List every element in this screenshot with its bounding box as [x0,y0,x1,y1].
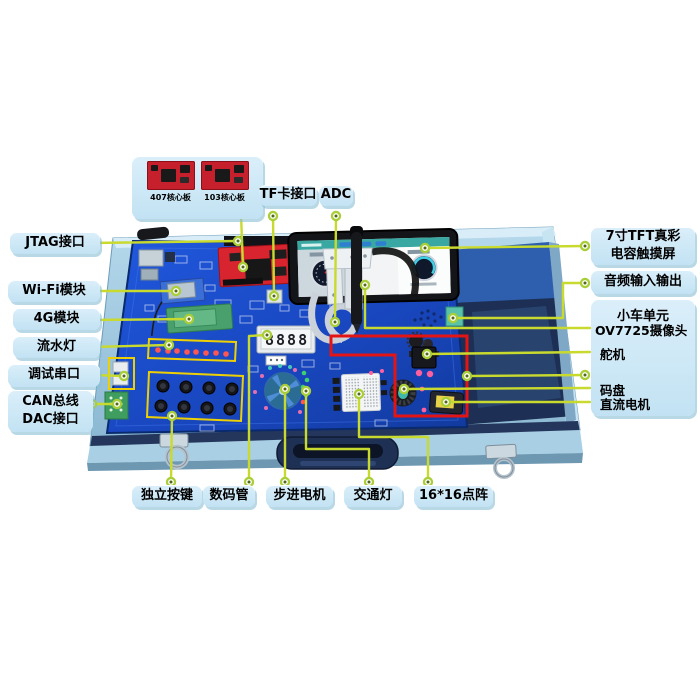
car-unit-panel: 小车单元 OV7725摄像头 舵机 码盘 直流电机 [591,299,695,416]
label-can-dac: CAN总线 DAC接口 [8,390,93,432]
core-board-103-caption: 103核心板 [204,192,245,203]
case-handle [277,437,398,469]
core-board-103-image [201,161,249,190]
core-board-103-thumb: 103核心板 [201,161,249,203]
label-debug-uart: 调试串口 [8,364,100,387]
core-board [218,244,295,287]
label-audio: 音频输入输出 [591,270,695,294]
label-wifi: Wi-Fi模块 [8,280,100,302]
product-diagram: 8888 [0,0,700,700]
label-tft: 7寸TFT真彩 电容触摸屏 [591,227,695,265]
label-dc-motor: 直流电机 [600,394,650,413]
label-tf-card: TF卡接口 [259,185,317,206]
pen [350,226,363,334]
storage-bin [450,242,576,425]
label-led-flow: 流水灯 [13,336,100,358]
core-board-407-thumb: 407核心板 [147,161,195,203]
label-camera: OV7725摄像头 [595,320,687,339]
label-stepper: 步进电机 [266,485,333,507]
core-board-407-image [147,161,195,190]
label-servo: 舵机 [600,344,625,363]
label-adc: ADC [319,185,353,206]
label-4g: 4G模块 [13,308,100,330]
core-board-panel: 407核心板 103核心板 [132,156,263,219]
label-traffic: 交通灯 [344,485,402,507]
core-board-407-caption: 407核心板 [150,192,191,203]
label-seven-seg: 数码管 [203,485,255,507]
label-matrix: 16*16点阵 [414,485,493,507]
label-jtag: JTAG接口 [10,232,100,254]
label-keys: 独立按键 [132,485,202,507]
